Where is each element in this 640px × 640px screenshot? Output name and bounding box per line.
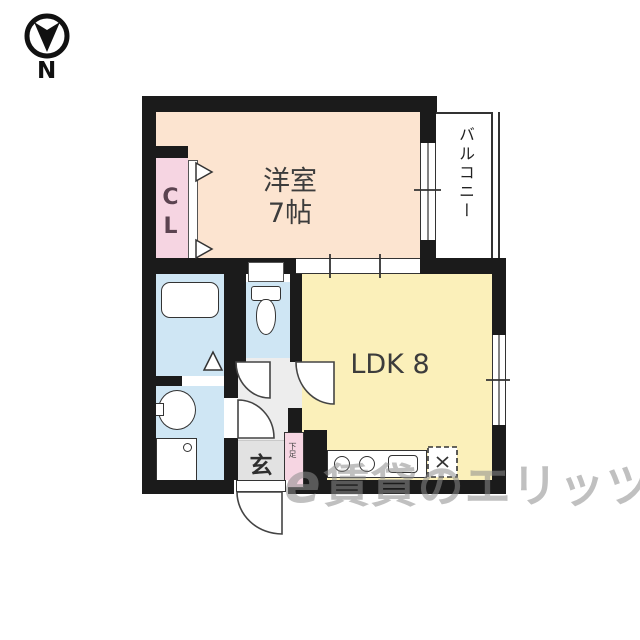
entrance-door-arc xyxy=(237,492,282,534)
watermark-logo-mark: e xyxy=(284,452,322,515)
balcony-label: バルコニー xyxy=(453,126,477,266)
wall-room-balcony-upper xyxy=(420,96,436,143)
compass-icon xyxy=(0,0,100,100)
window-room-balcony xyxy=(420,143,436,240)
compass-north-label: N xyxy=(37,58,56,84)
western-room-name: 洋室 xyxy=(229,166,351,198)
floor-plan-canvas: N 洋室 7帖 LDK 8 CL バルコニー 玄 下足 e賃貸のエリッツ xyxy=(0,0,640,640)
ldk-label: LDK 8 xyxy=(330,349,450,381)
toilet-wall-niche xyxy=(248,262,284,282)
wall-hall-washroom-lower xyxy=(224,438,238,480)
wall-closet-top xyxy=(142,146,188,158)
watermark-text: 賃貸のエリッツ xyxy=(324,459,640,513)
wall-toilet-left xyxy=(224,258,246,362)
wall-bath-washroom-partial xyxy=(156,376,182,386)
sliding-door-room-ldk xyxy=(296,258,420,274)
closet-door-track xyxy=(188,160,198,268)
wall-hall-washroom-upper xyxy=(224,362,238,398)
watermark-logo: e賃貸のエリッツ xyxy=(284,450,640,516)
toilet-bowl-icon xyxy=(256,299,276,335)
washing-machine-tap-icon xyxy=(183,443,192,452)
balcony-railing-outer xyxy=(498,112,500,258)
closet-label: CL xyxy=(159,185,181,277)
entrance-label: 玄 xyxy=(238,446,284,480)
window-ldk-right xyxy=(492,335,506,425)
balcony-railing-inner xyxy=(491,112,493,258)
western-room-size: 7帖 xyxy=(229,198,351,230)
entrance-threshold xyxy=(236,480,286,492)
wall-top xyxy=(145,96,437,112)
bathtub-icon xyxy=(161,282,219,318)
wall-hall-ldk xyxy=(288,408,302,434)
western-room-label: 洋室 7帖 xyxy=(229,166,351,230)
